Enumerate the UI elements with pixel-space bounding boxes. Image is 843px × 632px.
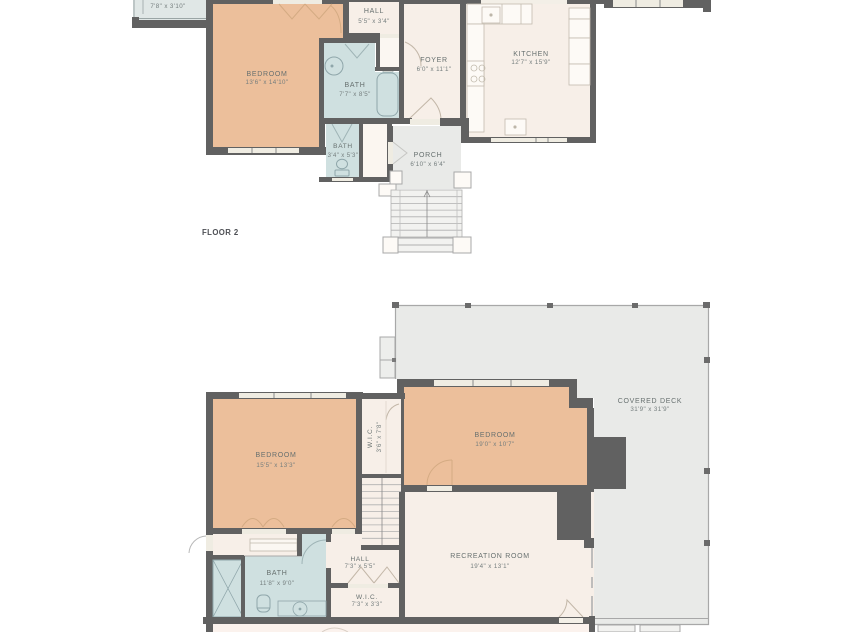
svg-text:BATH: BATH (333, 143, 353, 150)
svg-text:KITCHEN: KITCHEN (513, 51, 549, 58)
svg-text:31'9" x 31'9": 31'9" x 31'9" (630, 406, 669, 413)
svg-text:COVERED DECK: COVERED DECK (618, 398, 682, 405)
svg-text:HALL: HALL (350, 556, 369, 563)
svg-text:W.I.C.: W.I.C. (367, 426, 374, 448)
svg-text:7'3" x 5'5": 7'3" x 5'5" (345, 564, 376, 570)
svg-text:BEDROOM: BEDROOM (474, 432, 515, 439)
svg-text:6'0" x 11'1": 6'0" x 11'1" (417, 66, 452, 73)
svg-text:3'6" x 7'8": 3'6" x 7'8" (377, 422, 383, 453)
svg-text:15'5" x 13'3": 15'5" x 13'3" (256, 462, 295, 469)
svg-text:12'7" x 15'9": 12'7" x 15'9" (511, 59, 550, 66)
svg-text:W.I.C.: W.I.C. (356, 594, 378, 601)
svg-text:PORCH: PORCH (414, 152, 443, 159)
svg-text:BATH: BATH (345, 82, 366, 89)
svg-text:11'8" x 9'0": 11'8" x 9'0" (260, 580, 295, 587)
svg-text:19'0" x 10'7": 19'0" x 10'7" (475, 441, 514, 448)
svg-text:5'5" x 3'4": 5'5" x 3'4" (358, 18, 389, 25)
svg-text:7'7" x 8'5": 7'7" x 8'5" (339, 91, 370, 98)
svg-text:19'4" x 13'1": 19'4" x 13'1" (470, 563, 509, 570)
svg-text:FLOOR 2: FLOOR 2 (202, 228, 239, 237)
svg-text:7'3" x 3'3": 7'3" x 3'3" (352, 602, 383, 608)
svg-text:RECREATION ROOM: RECREATION ROOM (450, 553, 530, 560)
svg-text:HALL: HALL (364, 8, 384, 15)
svg-text:FOYER: FOYER (420, 57, 448, 64)
svg-text:13'6" x 14'10": 13'6" x 14'10" (246, 79, 289, 86)
svg-text:BEDROOM: BEDROOM (255, 452, 296, 459)
svg-text:BEDROOM: BEDROOM (246, 71, 287, 78)
svg-text:7'8" x 3'10": 7'8" x 3'10" (150, 3, 185, 10)
svg-text:3'4" x 5'3": 3'4" x 5'3" (328, 153, 359, 159)
svg-text:BATH: BATH (267, 570, 288, 577)
svg-text:6'10" x 6'4": 6'10" x 6'4" (410, 161, 445, 168)
